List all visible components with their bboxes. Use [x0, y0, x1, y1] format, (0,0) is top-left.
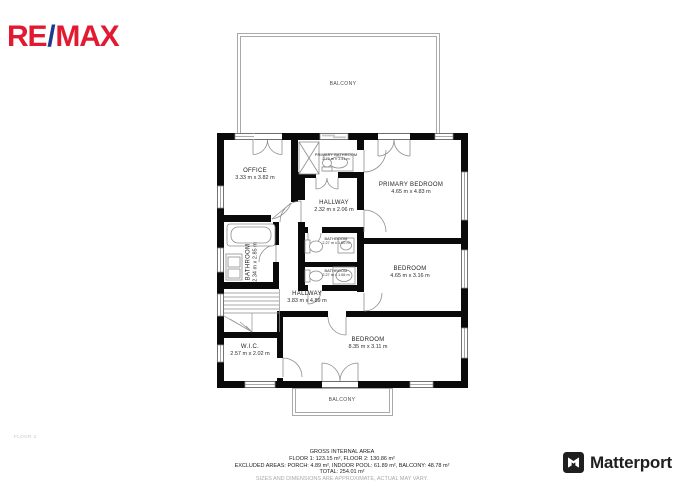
floor-number-label: FLOOR 2: [14, 434, 36, 439]
toilet-bowl: [310, 271, 323, 281]
room-name: HALLWAY: [314, 200, 353, 206]
room-name: PRIMARY BEDROOM: [379, 182, 443, 188]
room-label-office: OFFICE 3.33 m x 3.82 m: [235, 168, 274, 181]
room-dims: 8.35 m x 3.11 m: [348, 344, 387, 350]
matterport-icon: [563, 452, 584, 473]
room-label-wic: W.I.C. 2.57 m x 2.02 m: [230, 344, 269, 357]
room-label-bedroom-bottom: BEDROOM 8.35 m x 3.11 m: [348, 337, 387, 350]
room-label-primary-bathroom: PRIMARY BATHROOM 2.79 m x 1.41 m: [315, 152, 357, 161]
toilet-tank: [322, 167, 332, 171]
room-name: W.I.C.: [230, 344, 269, 350]
room-dims: 4.65 m x 4.83 m: [379, 189, 443, 195]
room-dims: 3.83 m x 4.89 m: [287, 298, 326, 304]
room-label-hallway-main: HALLWAY 3.83 m x 4.89 m: [287, 291, 326, 304]
toilet-bowl: [310, 241, 323, 252]
room-label-primary-bedroom: PRIMARY BEDROOM 4.65 m x 4.83 m: [379, 182, 443, 195]
room-label-hallway-small: HALLWAY 2.32 m x 2.06 m: [314, 200, 353, 213]
room-label-bathroom-left: BATHROOM 2.34 m x 2.85 m: [246, 242, 259, 281]
room-name: BATHROOM: [246, 242, 252, 281]
room-dims: 2.79 m x 1.41 m: [315, 157, 357, 161]
room-label-bedroom-mid: BEDROOM 4.65 m x 3.16 m: [390, 266, 429, 279]
room-dims: 2.34 m x 2.85 m: [253, 242, 259, 281]
floor-plan-page: RE/MAX: [0, 0, 684, 484]
room-dims: 4.65 m x 3.16 m: [390, 273, 429, 279]
room-label-balcony-bottom: BALCONY: [329, 397, 356, 403]
room-name: BEDROOM: [348, 337, 387, 343]
area-summary-disclaimer: SIZES AND DIMENSIONS ARE APPROXIMATE, AC…: [0, 476, 684, 483]
room-label-bathroom-1: BATHROOM 2.27 m x 1.50 m: [322, 236, 349, 245]
room-name: HALLWAY: [287, 291, 326, 297]
room-dims: 2.27 m x 1.50 m: [322, 241, 349, 245]
room-dims: 2.57 m x 2.02 m: [230, 351, 269, 357]
matterport-wordmark: Matterport: [590, 453, 672, 473]
room-name: BEDROOM: [390, 266, 429, 272]
room-dims: 2.27 m x 1.06 m: [322, 273, 349, 277]
stairs: [224, 289, 280, 332]
room-dims: 2.32 m x 2.06 m: [314, 207, 353, 213]
room-label-balcony-top: BALCONY: [330, 81, 357, 87]
room-dims: 3.33 m x 3.82 m: [235, 175, 274, 181]
room-label-bathroom-2: BATHROOM 2.27 m x 1.06 m: [322, 268, 349, 277]
room-name: OFFICE: [235, 168, 274, 174]
matterport-logo: Matterport: [563, 452, 672, 473]
